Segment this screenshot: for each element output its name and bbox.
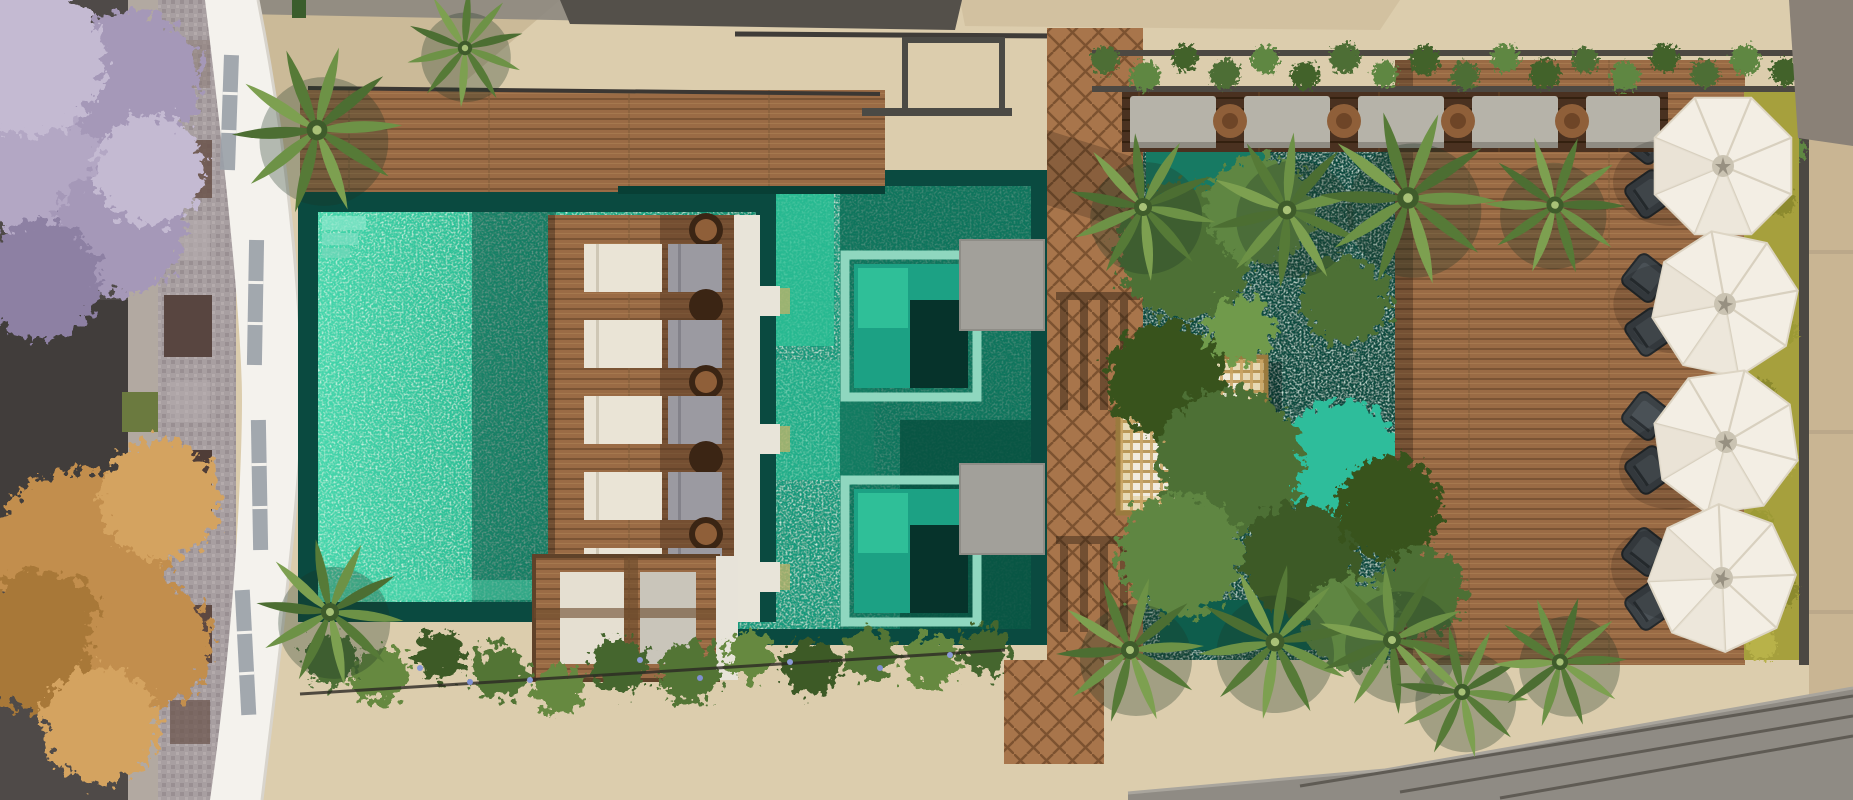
rooftop-render bbox=[0, 0, 1853, 800]
spa-pad-1 bbox=[960, 240, 1044, 330]
right-wall-slab bbox=[1789, 0, 1853, 146]
plaza-shadow-top bbox=[960, 0, 1400, 30]
lap-pool-deep-lane bbox=[472, 212, 556, 602]
bench-crossbar bbox=[862, 108, 1012, 116]
planter-rail-top bbox=[1092, 50, 1808, 56]
planter-sliver bbox=[292, 0, 306, 18]
render-canvas bbox=[0, 0, 1853, 800]
pool-rim-line bbox=[618, 186, 885, 194]
upper-rail bbox=[735, 34, 1060, 36]
spa-pad-2 bbox=[960, 464, 1044, 554]
